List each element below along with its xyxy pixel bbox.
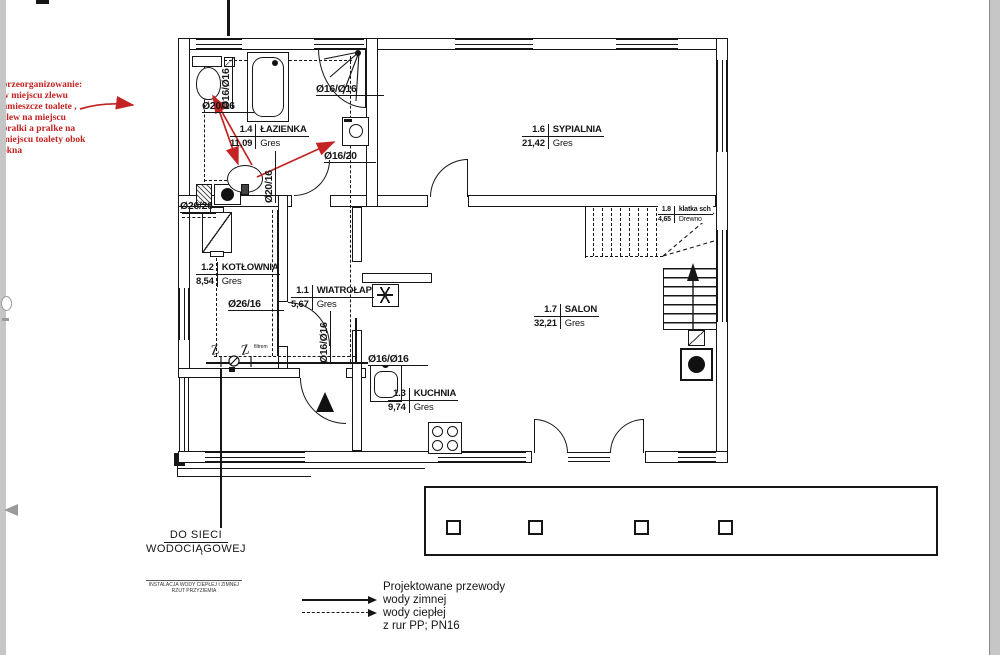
scan-edge-right [989, 0, 1000, 655]
scan-smudge [2, 318, 9, 321]
room-label-bathroom: 1.4ŁAZIENKA 11,09Gres [230, 124, 309, 149]
stamp-line2: RZUT PRZYZIEMIA [146, 588, 242, 594]
legend-note: z rur PP; PN16 [383, 620, 460, 632]
legend-arrowhead-icon [368, 609, 377, 617]
room-label-boiler-room: 1.2KOTŁOWNIA 8,54Gres [196, 262, 280, 287]
valve-symbols [221, 356, 251, 372]
room-label-staircase: 1.8klatka sch 4,65Drewno [658, 206, 713, 223]
room-label-living-room: 1.7SALON 32,21Gres [534, 304, 599, 329]
water-main-note: DO SIECI WODOCIĄGOWEJ [140, 529, 252, 555]
pipe-label-vertical: Ø16/Ø16 [220, 57, 233, 109]
pipe-label: Ø16/20 [324, 150, 376, 163]
room-label-vestibule: 1.1WIATROŁAP 5,67Gres [291, 285, 374, 310]
pipe-label: Ø16/Ø16 [368, 353, 428, 366]
pipe-label: Ø26/16 [228, 298, 284, 311]
valve-z-icon: Z [209, 342, 220, 358]
legend-arrowhead-icon [368, 596, 377, 604]
legend-cold-label: wody zimnej [383, 594, 446, 606]
pipe-label-vertical: Ø16/Ø16 [318, 311, 331, 363]
room-label-bedroom: 1.6SYPIALNIA 21,42Gres [522, 124, 604, 149]
scan-mark [227, 0, 230, 36]
floor-plan-scan: Z Z 1.4ŁAZIENKA 11,09Gres 1.6SYPIALNIA 2… [0, 0, 1000, 655]
valve-z-icon: Z [239, 342, 250, 358]
scan-edge-left [0, 0, 6, 655]
stamp-line1: INSTALACJA WODY CIEPŁEJ I ZIMNEJ [146, 580, 242, 588]
title-stamp: INSTALACJA WODY CIEPŁEJ I ZIMNEJ RZUT PR… [146, 580, 242, 594]
legend-solid-line [302, 599, 374, 601]
valve-handles: Z Z [209, 342, 250, 358]
handwritten-annotation: przeorganizowanie: w miejscu zlewu umies… [2, 80, 124, 157]
overlay-layer: Z Z [0, 0, 1000, 655]
stair-up-arrow [687, 263, 699, 329]
pipe-label: Ø16/Ø16 [316, 83, 384, 96]
room-label-kitchen: 1.3KUCHNIA 9,74Gres [388, 388, 458, 413]
legend-title: Projektowane przewody [383, 581, 505, 593]
legend-hot-label: wody ciepłej [383, 607, 446, 619]
pipe-label-vertical: Ø20/16 [263, 151, 276, 203]
scan-mark [36, 0, 49, 4]
filter-note: filtrem [254, 344, 268, 350]
water-main-line1: DO SIECI [164, 529, 228, 543]
legend-dashed-line [302, 612, 374, 613]
pipe-label: Ø26/26 [180, 200, 224, 213]
scan-smudge [1, 296, 12, 311]
water-main-line2: WODOCIĄGOWEJ [140, 543, 252, 555]
